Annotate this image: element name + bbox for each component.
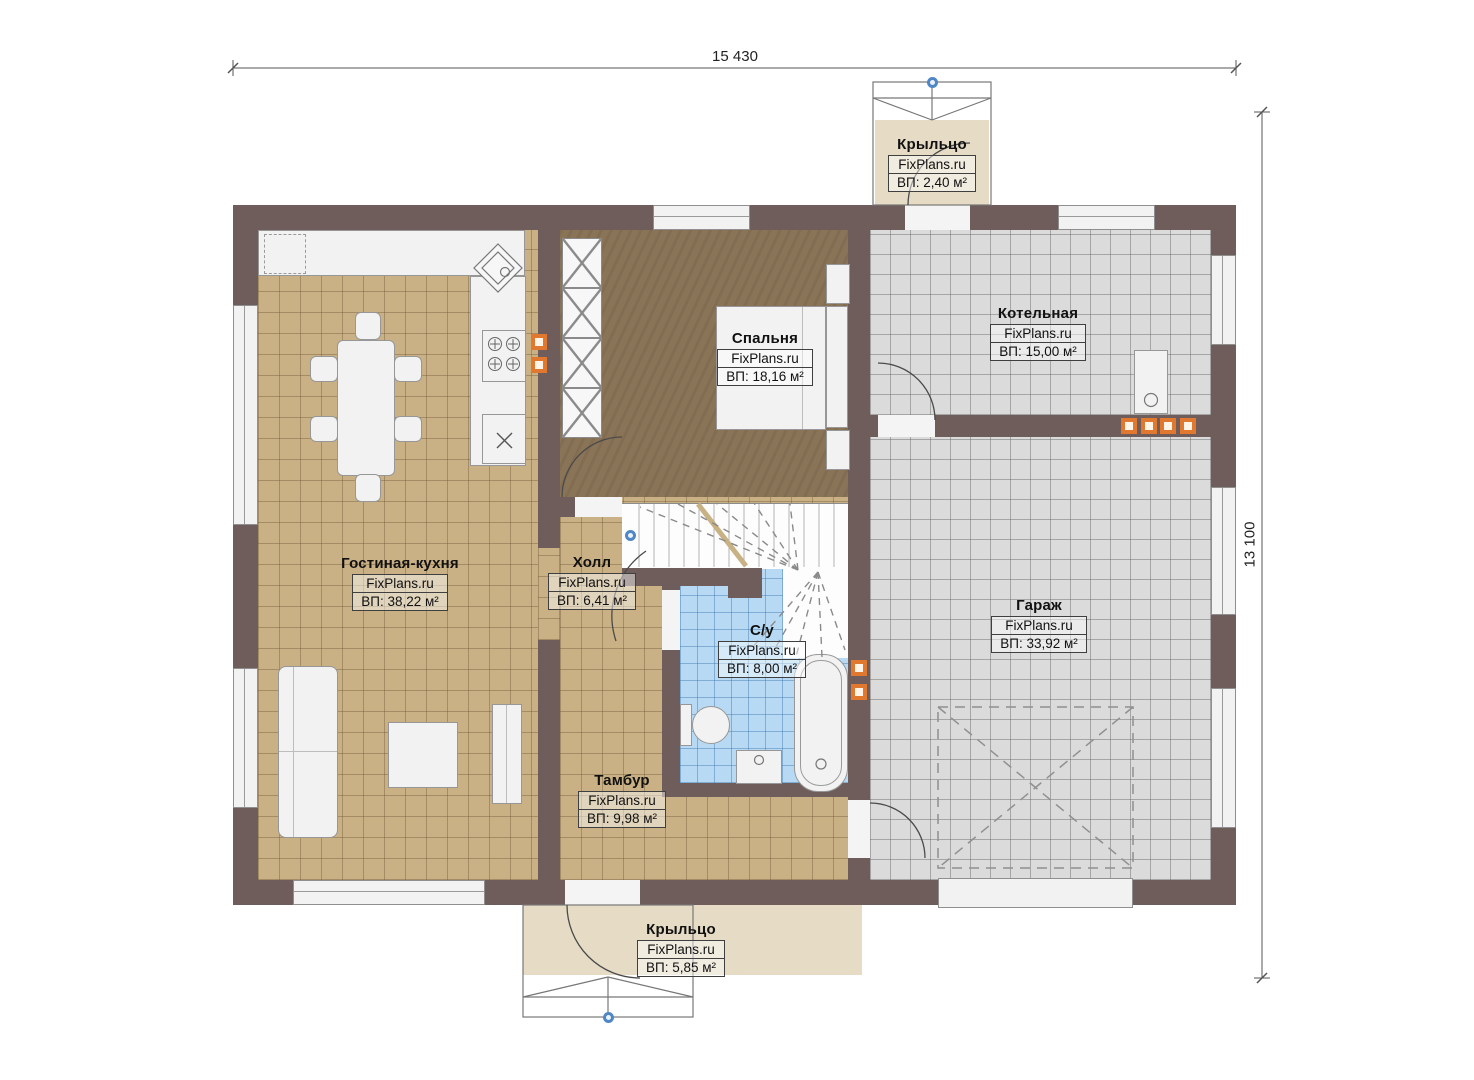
wardrobe-cell — [562, 338, 602, 388]
toilet-bowl — [692, 706, 730, 744]
vent-icon — [1160, 418, 1176, 434]
door-opening-garage — [848, 800, 870, 858]
window-right-garage-lower — [1211, 688, 1236, 828]
vent-icon — [1141, 418, 1157, 434]
chair — [394, 416, 422, 442]
node-marker-icon — [603, 1012, 614, 1023]
boiler-unit — [1134, 350, 1168, 414]
room-label-vestibule: Тамбур FixPlans.ruВП: 9,98 м² — [537, 772, 707, 828]
vent-icon — [1121, 418, 1137, 434]
node-marker-icon — [625, 530, 636, 541]
room-label-hall: Холл FixPlans.ruВП: 6,41 м² — [507, 554, 677, 610]
floor-garage — [870, 437, 1211, 880]
window-living-bottom — [293, 880, 485, 905]
window-boiler-top — [1058, 205, 1155, 230]
nightstand — [826, 264, 850, 304]
tv-stand — [492, 704, 522, 804]
room-label-garage: Гараж FixPlans.ruВП: 33,92 м² — [954, 597, 1124, 653]
sofa — [278, 666, 338, 838]
vent-icon — [531, 357, 547, 373]
vent-icon — [531, 334, 547, 350]
dimension-horizontal: 15 430 — [695, 48, 775, 65]
room-label-living-kitchen: Гостиная-кухня FixPlans.ruВП: 38,22 м² — [315, 555, 485, 611]
window-right-garage-upper — [1211, 487, 1236, 615]
vent-icon — [851, 684, 867, 700]
node-marker-icon — [927, 77, 938, 88]
room-label-bathroom: С/у FixPlans.ruВП: 8,00 м² — [677, 622, 847, 678]
wall-middle-right-lower — [848, 858, 870, 880]
bathtub-inner — [800, 660, 842, 786]
kitchen-appliance-dashed — [264, 234, 306, 274]
toilet-tank — [680, 704, 692, 746]
wall-living-middle-lower — [538, 640, 560, 880]
wall-stair-newel — [728, 568, 762, 598]
nightstand — [826, 430, 850, 470]
dining-table — [337, 340, 395, 476]
coffee-table — [388, 722, 458, 788]
chair — [355, 312, 381, 340]
wardrobe-cell — [562, 238, 602, 288]
door-opening-entry-bottom — [565, 880, 640, 905]
washbasin — [736, 750, 782, 784]
wardrobe-cell — [562, 388, 602, 438]
door-opening-bedroom — [575, 497, 622, 517]
room-label-porch-top: Крыльцо FixPlans.ruВП: 2,40 м² — [847, 136, 1017, 192]
room-label-bedroom: Спальня FixPlans.ruВП: 18,16 м² — [680, 330, 850, 386]
window-left-lower — [233, 668, 258, 808]
wall-boiler-garage-a — [870, 415, 878, 437]
wall-living-middle-upper — [538, 230, 560, 548]
chair — [310, 356, 338, 382]
door-opening-boiler — [878, 415, 935, 437]
dishwasher — [482, 414, 526, 464]
wardrobe-cell — [562, 288, 602, 338]
window-right-boiler — [1211, 255, 1236, 345]
stove — [482, 330, 526, 382]
vent-icon — [1180, 418, 1196, 434]
chair — [394, 356, 422, 382]
floor-plan-canvas: 15 430 13 100 Крыльцо FixPlans.ruВП: 2,4… — [0, 0, 1474, 1080]
window-bedroom-top — [653, 205, 750, 230]
wall-middle-right-upper — [848, 230, 870, 800]
room-label-boiler-room: Котельная FixPlans.ruВП: 15,00 м² — [953, 305, 1123, 361]
chair — [355, 474, 381, 502]
garage-gate — [938, 878, 1133, 908]
wall-bedroom-bottom — [560, 497, 575, 517]
room-label-porch-bottom: Крыльцо FixPlans.ruВП: 5,85 м² — [596, 921, 766, 977]
vent-icon — [851, 660, 867, 676]
chair — [310, 416, 338, 442]
window-left-upper — [233, 305, 258, 525]
dimension-vertical: 13 100 — [1242, 503, 1259, 587]
door-opening-entry-top — [905, 205, 970, 230]
